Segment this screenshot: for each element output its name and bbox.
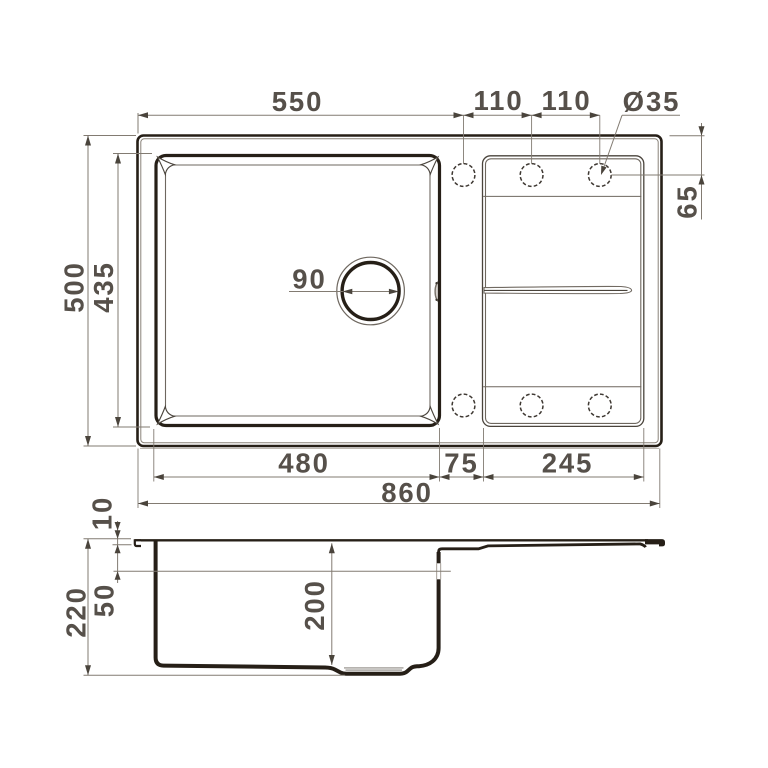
- svg-text:860: 860: [381, 477, 433, 508]
- svg-text:220: 220: [61, 586, 92, 638]
- svg-text:10: 10: [87, 496, 118, 530]
- svg-text:480: 480: [278, 448, 330, 479]
- svg-text:110: 110: [473, 85, 523, 116]
- svg-text:75: 75: [444, 448, 478, 479]
- svg-text:110: 110: [541, 85, 591, 116]
- svg-text:245: 245: [542, 448, 594, 479]
- svg-text:Ø35: Ø35: [623, 86, 681, 117]
- svg-text:200: 200: [299, 579, 330, 631]
- svg-text:435: 435: [88, 261, 119, 313]
- svg-text:90: 90: [292, 264, 326, 295]
- svg-text:550: 550: [272, 86, 324, 117]
- svg-text:500: 500: [59, 261, 90, 313]
- svg-text:65: 65: [672, 184, 703, 218]
- svg-text:50: 50: [89, 583, 120, 617]
